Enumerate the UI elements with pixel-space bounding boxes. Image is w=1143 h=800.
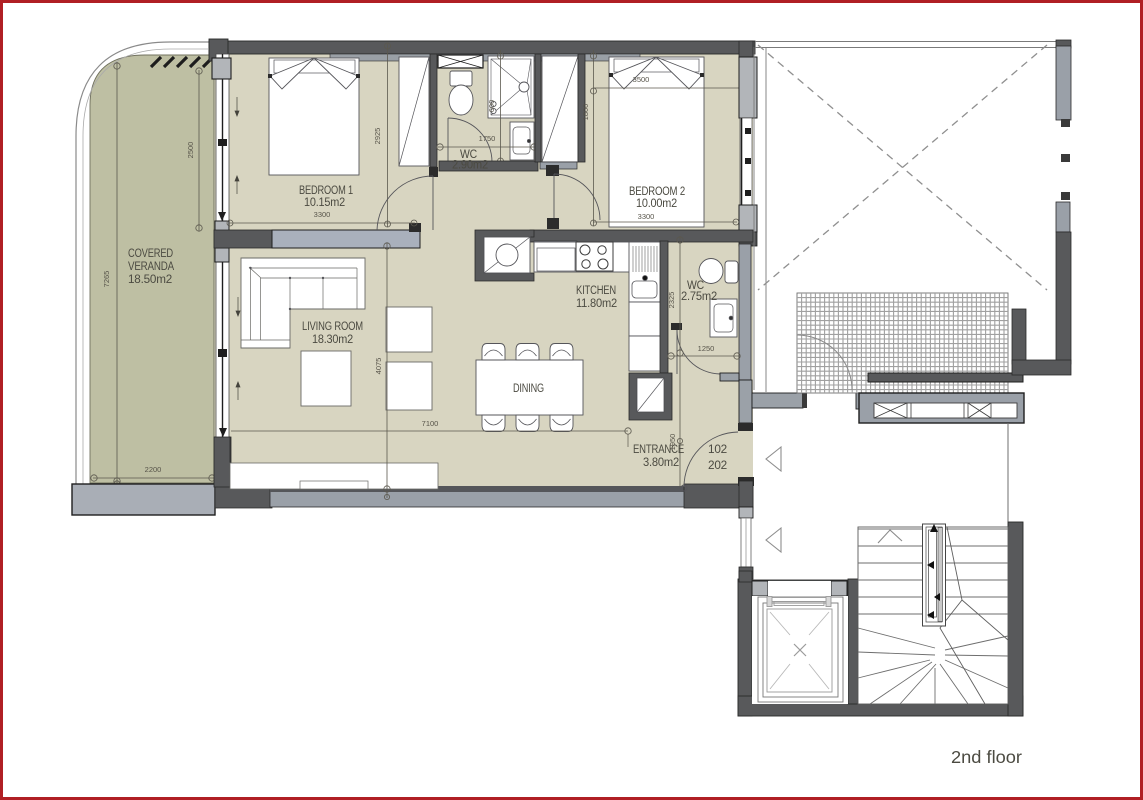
svg-text:ENTRANCE: ENTRANCE (633, 444, 684, 456)
svg-text:VERANDA: VERANDA (128, 261, 174, 273)
svg-text:2200: 2200 (145, 465, 162, 474)
svg-text:102: 102 (708, 444, 727, 456)
svg-text:2500: 2500 (186, 142, 195, 159)
svg-text:600: 600 (487, 100, 496, 113)
svg-text:7100: 7100 (422, 419, 439, 428)
svg-text:2.75m2: 2.75m2 (681, 291, 717, 303)
svg-text:2325: 2325 (667, 292, 676, 309)
svg-text:BEDROOM 2: BEDROOM 2 (629, 186, 685, 198)
svg-text:3500: 3500 (633, 75, 650, 84)
svg-text:2.90m2: 2.90m2 (452, 160, 488, 172)
svg-text:LIVING ROOM: LIVING ROOM (302, 321, 363, 333)
svg-text:2925: 2925 (373, 128, 382, 145)
svg-text:DINING: DINING (513, 383, 544, 395)
svg-text:1800: 1800 (581, 104, 590, 121)
svg-text:10.15m2: 10.15m2 (304, 197, 345, 209)
svg-text:202: 202 (708, 460, 727, 472)
svg-text:11.80m2: 11.80m2 (576, 298, 617, 310)
svg-text:KITCHEN: KITCHEN (576, 285, 616, 297)
svg-text:COVERED: COVERED (128, 248, 173, 260)
svg-text:18.50m2: 18.50m2 (128, 274, 172, 286)
svg-text:1750: 1750 (479, 134, 496, 143)
svg-text:BEDROOM 1: BEDROOM 1 (299, 185, 353, 197)
svg-text:3.80m2: 3.80m2 (643, 457, 679, 469)
svg-text:4075: 4075 (374, 358, 383, 375)
svg-text:2nd floor: 2nd floor (951, 747, 1022, 767)
svg-text:18.30m2: 18.30m2 (312, 334, 353, 346)
svg-text:10.00m2: 10.00m2 (636, 198, 677, 210)
svg-text:3300: 3300 (314, 210, 331, 219)
svg-text:1250: 1250 (698, 344, 715, 353)
svg-text:7265: 7265 (102, 271, 111, 288)
svg-text:3300: 3300 (638, 212, 655, 221)
